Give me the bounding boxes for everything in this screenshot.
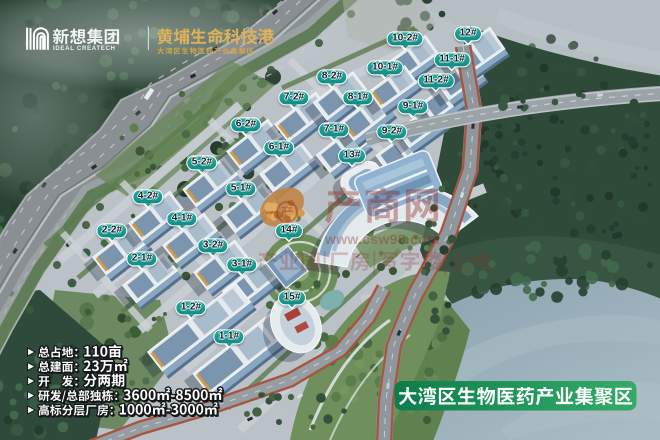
svg-text:www.csw98.com: www.csw98.com <box>324 231 440 247</box>
svg-text:IDEAL CREATECH: IDEAL CREATECH <box>53 45 116 52</box>
